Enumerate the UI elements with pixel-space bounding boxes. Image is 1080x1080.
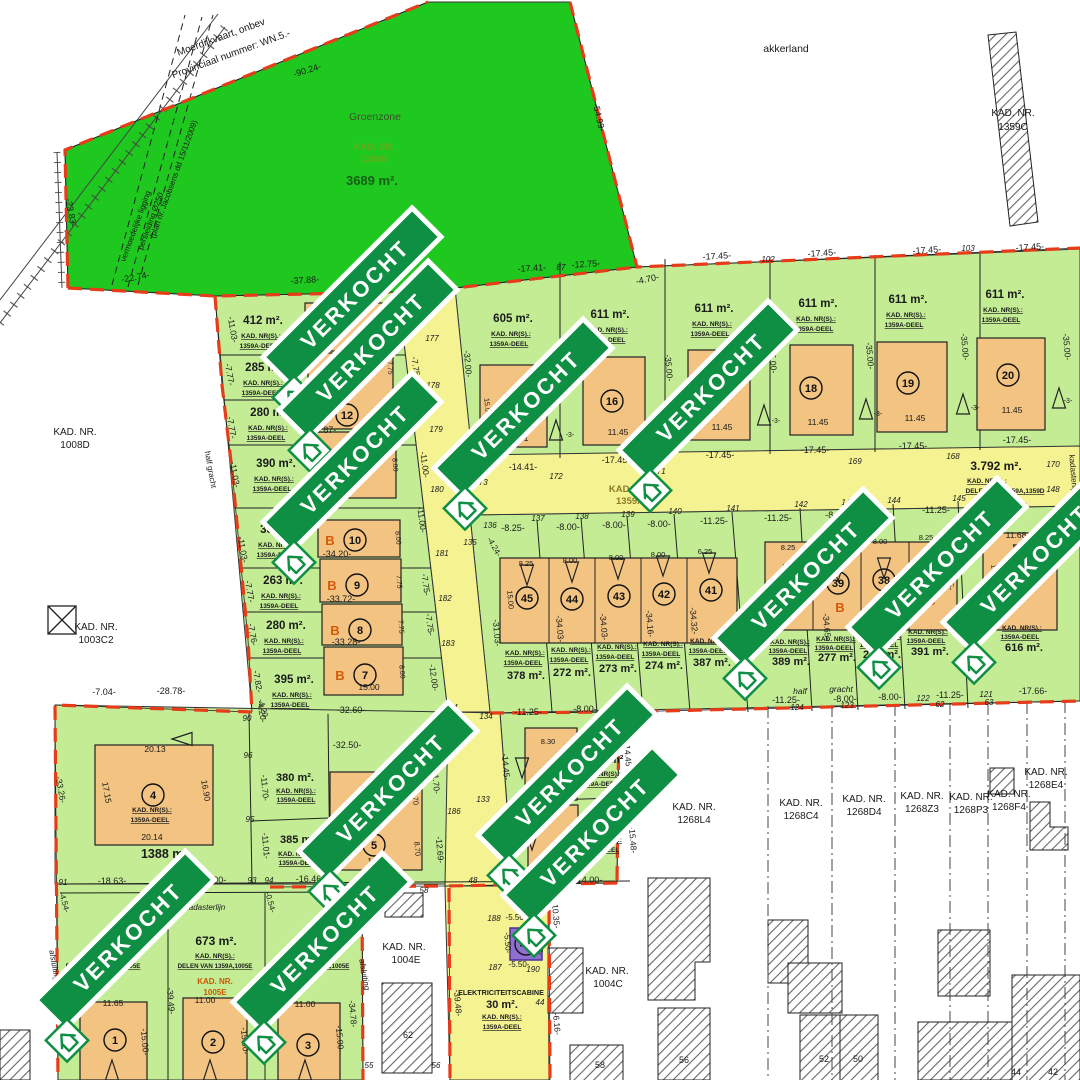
map-label: B bbox=[327, 578, 336, 593]
map-label: KAD. NR(S).: bbox=[254, 476, 294, 483]
map-label: 180 bbox=[430, 485, 444, 494]
map-label: 8.00 bbox=[393, 531, 401, 545]
map-label: KAD. NR. bbox=[382, 942, 425, 953]
map-label: 62 bbox=[936, 700, 945, 709]
map-label: 1359A-DEEL bbox=[907, 638, 946, 645]
map-label: -17.45- bbox=[702, 250, 731, 261]
map-label: 94 bbox=[265, 876, 274, 885]
map-label: KAD. NR. bbox=[991, 108, 1034, 119]
map-canvas: Moerdijkvaart, onbevProvinciaal nummer: … bbox=[0, 0, 1080, 1080]
map-label: -8.00- bbox=[647, 519, 671, 529]
map-label: -8.00- bbox=[878, 692, 902, 702]
plot-number-text: 10 bbox=[349, 535, 361, 547]
map-label: -3- bbox=[874, 411, 883, 418]
map-label: 8.70 bbox=[412, 841, 422, 856]
map-label: 1359A-DEEL bbox=[253, 486, 292, 493]
map-label: KAD. NR(S).: bbox=[597, 644, 637, 651]
map-label: 11.45 bbox=[808, 417, 829, 427]
map-label: KAD. NR(S).: bbox=[482, 1014, 522, 1021]
map-label: 58 bbox=[420, 886, 429, 895]
map-label: KAD. NR(S).: bbox=[243, 380, 283, 387]
map-label: 55 bbox=[365, 1061, 374, 1070]
map-label: KAD. NR(S).: bbox=[272, 692, 312, 699]
map-label: 186 bbox=[447, 807, 461, 816]
map-label: 20.13 bbox=[144, 744, 166, 754]
map-label: DELEN VAN 1359A,1005E bbox=[178, 963, 253, 970]
plot-number-text: 7 bbox=[362, 670, 368, 682]
map-label: 11.65 bbox=[103, 998, 124, 1008]
map-label: 188 bbox=[487, 914, 501, 923]
map-label: -6.16- bbox=[551, 1012, 563, 1035]
map-label: 136 bbox=[483, 521, 497, 530]
map-label: 96 bbox=[244, 751, 253, 760]
map-label: KAD. NR. bbox=[74, 622, 117, 633]
map-label: -8.25- bbox=[501, 523, 525, 533]
map-label: B bbox=[325, 533, 334, 548]
map-label: 42 bbox=[1048, 1067, 1058, 1077]
map-label: KAD. NR(S).: bbox=[816, 636, 856, 643]
map-label: 1268D4 bbox=[846, 807, 881, 818]
plot-number-text: 44 bbox=[566, 594, 579, 606]
map-label: 182 bbox=[438, 594, 452, 603]
map-label: 1359A-DEEL bbox=[271, 702, 310, 709]
map-label: 1268Z3 bbox=[905, 804, 939, 815]
map-label: 62 bbox=[403, 1030, 413, 1040]
map-label: 170 bbox=[1046, 460, 1060, 469]
map-label: 8.00 bbox=[397, 665, 405, 679]
map-label: 6.25 bbox=[698, 547, 713, 556]
map-label: 391 m². bbox=[911, 646, 949, 658]
map-label: 7.75 bbox=[394, 575, 402, 589]
plot-number-text: 41 bbox=[705, 585, 717, 597]
map-label: 1359A-DEEL bbox=[982, 317, 1021, 324]
map-label: 63 bbox=[985, 698, 994, 707]
map-label: 1268P3 bbox=[954, 805, 989, 816]
map-label: 142 bbox=[794, 500, 808, 509]
plot-number-text: 45 bbox=[521, 593, 533, 605]
map-label: 141 bbox=[726, 504, 739, 513]
map-label: KAD. NR(S).: bbox=[983, 307, 1023, 314]
map-label: 1359A-DEEL bbox=[596, 654, 635, 661]
map-label: 1008D bbox=[60, 440, 89, 451]
map-label: -11.25- bbox=[700, 516, 728, 526]
map-label: 8.00 bbox=[390, 458, 398, 472]
map-label: KAD. NR(S).: bbox=[264, 638, 304, 645]
map-label: 8.00 bbox=[563, 556, 578, 565]
map-label: 8.30 bbox=[541, 737, 556, 746]
map-label: 148 bbox=[1046, 485, 1060, 494]
map-label: 177 bbox=[425, 334, 439, 343]
map-label: KAD. NR(S).: bbox=[770, 639, 810, 646]
map-label: 390 m². bbox=[256, 458, 296, 470]
map-label: 48 bbox=[469, 876, 478, 885]
plot-number-text: 12 bbox=[341, 410, 353, 422]
map-label: 1359A-DEEL bbox=[490, 341, 529, 348]
map-label: 273 m². bbox=[599, 663, 637, 675]
map-label: 15.00 bbox=[505, 590, 516, 609]
map-label: KAD. NR. bbox=[197, 977, 233, 986]
map-label: 56 bbox=[679, 1055, 689, 1065]
map-label: 102 bbox=[761, 255, 775, 264]
map-label: 1359A-DEEL bbox=[504, 660, 543, 667]
map-label: -14.41- bbox=[509, 462, 538, 472]
plot-number-text: 43 bbox=[613, 591, 625, 603]
plot-number-text: 18 bbox=[805, 383, 817, 395]
map-label: 90 bbox=[243, 714, 252, 723]
map-label: 8.00 bbox=[609, 553, 624, 562]
map-label: KAD. NR(S).: bbox=[886, 312, 926, 319]
map-label: 1359A-DEEL bbox=[550, 657, 589, 664]
map-label: 190 bbox=[526, 965, 540, 974]
map-label: 1359B bbox=[361, 154, 388, 164]
map-label: 169 bbox=[848, 457, 862, 466]
map-label: 611 m². bbox=[889, 294, 928, 306]
map-label: KAD. NR(S).: bbox=[692, 321, 732, 328]
map-label: KAD. NR. bbox=[900, 791, 943, 802]
map-label: 387 m². bbox=[693, 657, 731, 669]
map-label: 1004E bbox=[392, 955, 421, 966]
map-label: -37.88- bbox=[290, 274, 319, 285]
map-label: -33.72- bbox=[327, 594, 356, 604]
map-label: 95 bbox=[246, 815, 255, 824]
map-label: 168 bbox=[946, 452, 960, 461]
map-label: 44 bbox=[536, 998, 545, 1007]
map-label: 11.45 bbox=[1002, 405, 1023, 415]
map-label: -17.45- bbox=[899, 441, 928, 451]
map-label: 135 bbox=[463, 538, 477, 547]
map-label: 378 m². bbox=[507, 670, 545, 682]
map-label: 1359C bbox=[998, 122, 1027, 133]
map-label: KAD. NR. bbox=[672, 802, 715, 813]
map-label: 15.00 bbox=[358, 682, 380, 692]
map-label: 277 m². bbox=[818, 652, 856, 664]
map-label: KAD. NR(S).: bbox=[796, 316, 836, 323]
map-label: KAD. NR(S).: bbox=[195, 953, 235, 960]
map-label: B bbox=[835, 600, 844, 615]
map-label: 103 bbox=[961, 244, 975, 253]
map-label: 58 bbox=[595, 1060, 605, 1070]
map-label: -11.25- bbox=[922, 505, 950, 515]
map-label: 605 m². bbox=[493, 313, 533, 325]
map-label: 123 bbox=[840, 701, 854, 710]
map-label: 1268L4 bbox=[677, 815, 711, 826]
plot-number-text: 19 bbox=[902, 378, 914, 390]
map-label: 3.792 m². bbox=[970, 459, 1021, 473]
map-label: -17.45- bbox=[1015, 241, 1044, 252]
map-label: 179 bbox=[429, 425, 443, 434]
map-label: KAD. NR. bbox=[779, 798, 822, 809]
map-label: 274 m². bbox=[645, 660, 683, 672]
map-label: 137 bbox=[531, 514, 545, 523]
map-label: 44 bbox=[1011, 1067, 1021, 1077]
map-label: -17.45- bbox=[1003, 435, 1032, 445]
map-label: KAD. NR. bbox=[53, 427, 96, 438]
map-label: 272 m². bbox=[553, 667, 591, 679]
map-label: 8.25 bbox=[519, 559, 534, 568]
map-label: Groenzone bbox=[349, 111, 401, 123]
map-label: -11.25- bbox=[936, 690, 964, 700]
map-label: 87 bbox=[557, 263, 566, 272]
map-label: KAD. NR(S).: bbox=[276, 788, 316, 795]
map-label: 1359A-DEEL bbox=[795, 326, 834, 333]
map-label: 616 m². bbox=[1005, 642, 1043, 654]
map-label: 611 m². bbox=[591, 309, 630, 321]
map-label: 1359A-DEEL bbox=[691, 331, 730, 338]
map-label: 1359A-DEEL bbox=[277, 797, 316, 804]
map-label: 133 bbox=[476, 795, 490, 804]
map-label: 181 bbox=[435, 549, 448, 558]
map-label: -11.25- bbox=[764, 513, 792, 523]
map-label: -34.20- bbox=[323, 549, 352, 559]
map-label: -3- bbox=[566, 432, 575, 439]
utility-marker-icon bbox=[48, 606, 76, 634]
plot-number-text: 2 bbox=[210, 1037, 216, 1049]
map-label: -17.45- bbox=[801, 445, 830, 455]
map-label: -17.66- bbox=[1019, 686, 1048, 696]
map-label: 52 bbox=[819, 1054, 829, 1064]
map-label: 144 bbox=[887, 496, 901, 505]
map-label: 138 bbox=[575, 512, 589, 521]
map-label: 1268E4 bbox=[1029, 780, 1064, 791]
map-label: 1359A-DEEL bbox=[260, 603, 299, 610]
map-label: -11.25- bbox=[514, 707, 542, 717]
map-label: 122 bbox=[916, 694, 930, 703]
map-label: KAD. NR(S).: bbox=[241, 333, 281, 340]
map-label: KAD. NR(S).: bbox=[908, 629, 948, 636]
map-label: 1359A-DEEL bbox=[642, 651, 681, 658]
map-label: KAD. NR(S).: bbox=[248, 425, 288, 432]
plot-number-text: 20 bbox=[1002, 370, 1014, 382]
map-label: 1359A-DEEL bbox=[483, 1024, 522, 1031]
map-label: 380 m². bbox=[276, 772, 314, 784]
map-label: 1359A-DEEL bbox=[885, 322, 924, 329]
map-label: KAD. NR. bbox=[1024, 767, 1067, 778]
map-label: KAD. NR. bbox=[987, 789, 1030, 800]
map-label: 7.75 bbox=[396, 620, 404, 634]
map-label: 124 bbox=[790, 703, 804, 712]
map-label: -3- bbox=[1064, 398, 1073, 405]
map-label: -28.78- bbox=[157, 686, 186, 696]
map-label: 140 bbox=[668, 507, 682, 516]
map-label: ELEKTRICITEITSCABINE bbox=[458, 988, 544, 997]
map-label: -32.60- bbox=[337, 705, 366, 715]
map-label: -32.50- bbox=[333, 740, 362, 750]
map-label: -17.45- bbox=[807, 247, 836, 258]
map-label: 1359A-DEEL bbox=[263, 648, 302, 655]
map-label: 139 bbox=[621, 510, 635, 519]
map-label: KAD. NR. bbox=[585, 966, 628, 977]
map-label: 11.00 bbox=[295, 999, 316, 1009]
map-label: KAD. NR(S).: bbox=[132, 807, 172, 814]
map-label: 395 m². bbox=[274, 674, 314, 686]
map-label: KAD. NR(S).: bbox=[505, 650, 545, 657]
map-label: KAD. NR. bbox=[949, 792, 992, 803]
map-label: 187 bbox=[488, 963, 502, 972]
plot-number-text: 3 bbox=[305, 1040, 311, 1052]
map-label: 280 m². bbox=[266, 620, 306, 632]
map-label: 1359A-DEEL bbox=[131, 817, 170, 824]
map-label: -8.00- bbox=[573, 704, 597, 714]
map-label: 1003C2 bbox=[78, 635, 113, 646]
map-label: 11.45 bbox=[712, 422, 733, 432]
map-label: 1359A-DEEL bbox=[247, 435, 286, 442]
map-label: 20.14 bbox=[141, 832, 163, 842]
cadastral-map: Moerdijkvaart, onbevProvinciaal nummer: … bbox=[0, 0, 1080, 1080]
map-label: 134 bbox=[479, 712, 493, 721]
map-label: 3689 m². bbox=[346, 173, 398, 188]
plot-number-text: 42 bbox=[658, 589, 670, 601]
map-label: 91 bbox=[59, 878, 68, 887]
map-label: KAD. NR(S).: bbox=[551, 647, 591, 654]
map-label: KAD. NR(S).: bbox=[261, 593, 301, 600]
map-label: 93 bbox=[248, 876, 257, 885]
map-label: 611 m². bbox=[695, 303, 734, 315]
map-label: -12.75- bbox=[571, 258, 600, 269]
map-label: -18.63- bbox=[98, 876, 127, 886]
plot-number-text: 8 bbox=[357, 625, 363, 637]
map-label: 389 m². bbox=[772, 656, 810, 668]
map-label: 611 m². bbox=[986, 289, 1025, 301]
map-label: -7.04- bbox=[92, 687, 116, 697]
map-label: 611 m². bbox=[799, 298, 838, 310]
map-label: -17.45- bbox=[912, 244, 941, 255]
map-label: -17.41- bbox=[517, 262, 546, 273]
map-label: KAD. NR(S).: bbox=[1002, 625, 1042, 632]
map-label: 172 bbox=[549, 472, 563, 481]
map-label: KAD. NR(S).: bbox=[643, 641, 683, 648]
map-label: -8.00- bbox=[556, 522, 580, 532]
map-label: 8.00 bbox=[651, 550, 666, 559]
map-label: 8.25 bbox=[781, 543, 796, 552]
map-label: -3- bbox=[971, 405, 980, 412]
map-label: 1359A-DEEL bbox=[1001, 634, 1040, 641]
map-label: 412 m². bbox=[243, 315, 283, 327]
map-label: KAD. NR. bbox=[842, 794, 885, 805]
map-label: 183 bbox=[441, 639, 455, 648]
map-label: -33.28- bbox=[332, 637, 361, 647]
map-label: 1268F4 bbox=[992, 802, 1026, 813]
map-label: 11.45 bbox=[905, 413, 926, 423]
plot-number-text: 4 bbox=[150, 790, 157, 802]
plot-number-text: 9 bbox=[354, 580, 360, 592]
map-label: 11.00 bbox=[195, 995, 216, 1005]
map-label: akkerland bbox=[763, 43, 809, 55]
map-label: KAD. NR. bbox=[354, 142, 394, 152]
map-label: -8.00- bbox=[602, 520, 626, 530]
map-label: B bbox=[335, 668, 344, 683]
map-label: 50 bbox=[853, 1054, 863, 1064]
map-label: -17.45- bbox=[706, 450, 735, 460]
plot-number-text: 5 bbox=[371, 840, 377, 852]
map-label: 145 bbox=[952, 494, 966, 503]
plot-number-text: 1 bbox=[112, 1035, 118, 1047]
map-label: -3- bbox=[772, 418, 781, 425]
map-label: 1004C bbox=[593, 979, 622, 990]
map-label: 11.45 bbox=[608, 427, 629, 437]
map-label: 1359A-DEEL bbox=[769, 648, 808, 655]
map-label: KAD. NR(S).: bbox=[491, 331, 531, 338]
map-label: gracht bbox=[829, 684, 853, 694]
map-label: 1268C4 bbox=[783, 811, 818, 822]
map-label: 673 m². bbox=[195, 934, 236, 948]
plot-number-text: 16 bbox=[606, 396, 618, 408]
map-label: B bbox=[330, 623, 339, 638]
map-label: 30 m². bbox=[486, 999, 518, 1011]
map-label: 1359A-DEEL bbox=[815, 645, 854, 652]
map-label: 56 bbox=[432, 1061, 441, 1070]
